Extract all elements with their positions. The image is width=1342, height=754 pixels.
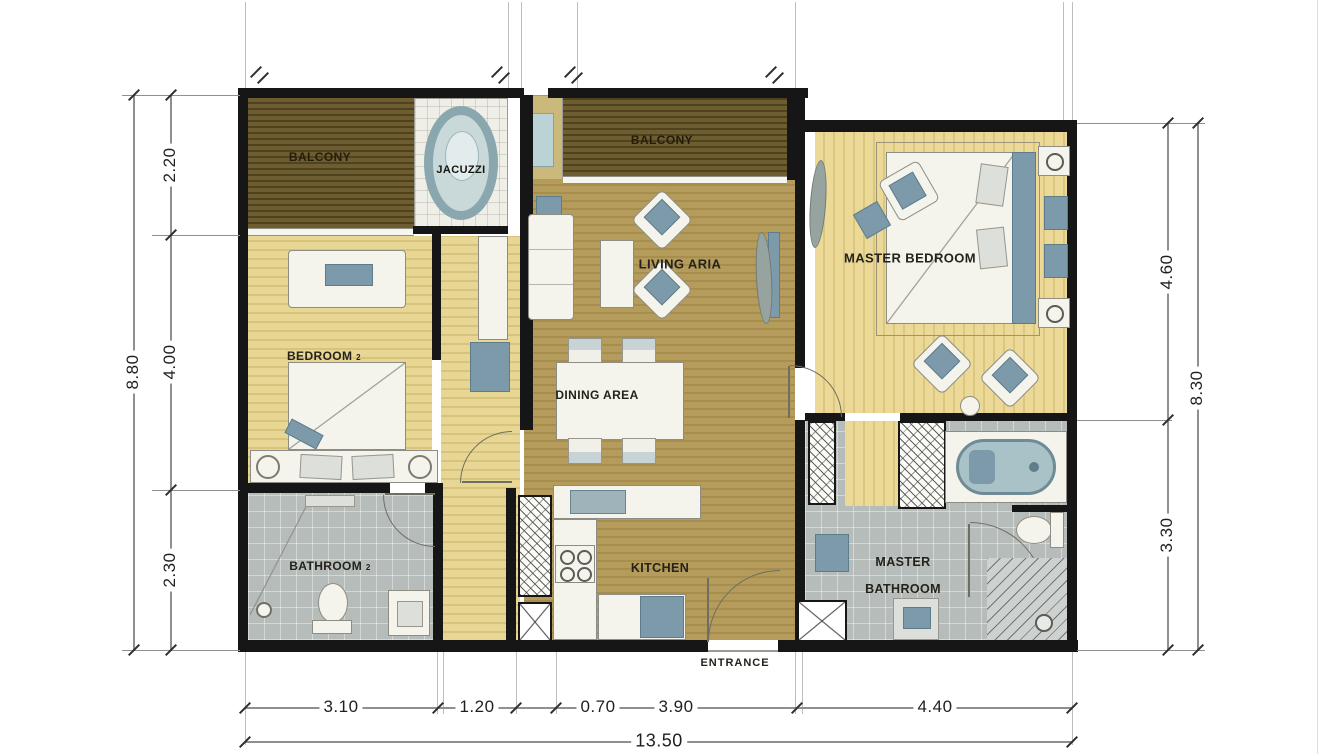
- sofa-icon: [528, 214, 574, 320]
- railing-tick: [564, 66, 576, 78]
- door-leaf: [788, 366, 790, 418]
- wall-cushion: [1044, 244, 1068, 278]
- pantry-icon: [518, 495, 552, 597]
- sink-icon: [570, 490, 626, 514]
- lamp-icon: [1046, 305, 1064, 323]
- wall: [795, 88, 805, 368]
- toilet-tank: [312, 620, 352, 634]
- room-label-bedroom2-text: BEDROOM: [287, 349, 352, 363]
- extension-line: [1072, 2, 1073, 120]
- dim-label-bottom-seg2: 0.70: [576, 697, 619, 717]
- side-table-icon: [960, 396, 980, 416]
- wall: [238, 640, 708, 652]
- basin-bowl: [397, 601, 423, 627]
- fridge-icon: [640, 596, 684, 638]
- wardrobe-icon: [470, 342, 510, 392]
- wall: [1012, 505, 1067, 512]
- chair-icon: [568, 438, 602, 464]
- dim-label-bottom-seg1: 1.20: [455, 697, 498, 717]
- room-label-master-bathroom-line1: MASTER: [875, 555, 930, 569]
- toilet-icon: [1016, 516, 1052, 544]
- armchair-cushion: [992, 357, 1029, 394]
- toilet-tank: [1050, 512, 1064, 548]
- shaft-x-icon: [797, 600, 847, 642]
- tub-headrest: [969, 450, 995, 484]
- dim-connector: [122, 95, 240, 96]
- extension-line: [795, 652, 796, 714]
- extension-line: [245, 652, 246, 745]
- wardrobe-icon: [808, 421, 836, 505]
- sliding-door-icon: [563, 176, 787, 184]
- bathtub-icon: [956, 439, 1056, 495]
- extension-line: [795, 2, 796, 88]
- washbasin-icon: [388, 590, 430, 636]
- dim-label-right-seg1: 3.30: [1157, 513, 1177, 556]
- pillow-icon: [351, 454, 394, 480]
- sliding-door-icon: [248, 228, 414, 236]
- railing-tick: [250, 66, 262, 78]
- drain-icon: [1035, 614, 1053, 632]
- tub-drain: [1029, 462, 1039, 472]
- railing-tick: [257, 72, 269, 84]
- floor-plan-canvas: BALCONY JACUZZI BALCONY LIVING ARIA MAST…: [0, 0, 1342, 754]
- extension-line: [437, 652, 438, 714]
- room-label-bedroom2: BEDROOM 2: [287, 349, 361, 363]
- railing-tick: [765, 66, 777, 78]
- shelf-icon: [305, 495, 355, 507]
- room-label-balcony-top: BALCONY: [631, 133, 693, 147]
- room-label-dining-area: DINING AREA: [555, 388, 638, 402]
- lamp-icon: [408, 455, 432, 479]
- room-label-bathroom2: BATHROOM 2: [289, 559, 371, 573]
- dim-label-left-seg0: 2.20: [160, 143, 180, 186]
- pillow-icon: [299, 454, 342, 480]
- wall: [238, 483, 390, 493]
- wall: [432, 228, 441, 360]
- extension-line: [245, 2, 246, 88]
- burner: [560, 550, 575, 565]
- wall: [900, 413, 1070, 421]
- door-leaf: [968, 524, 970, 597]
- extension-line: [802, 652, 803, 714]
- chair-icon: [622, 438, 656, 464]
- burner: [577, 567, 592, 582]
- wall: [413, 226, 508, 234]
- dim-label-left-seg2: 2.30: [160, 548, 180, 591]
- right-edge-line: [1317, 0, 1318, 754]
- coffee-table-icon: [600, 240, 634, 308]
- tv-icon: [325, 264, 373, 286]
- dim-label-bottom-seg4: 4.40: [913, 697, 956, 717]
- room-label-bathroom2-number: 2: [366, 563, 371, 572]
- dimension-line-right-segments: [1167, 123, 1169, 650]
- burner: [577, 550, 592, 565]
- chair-icon: [568, 338, 602, 364]
- chair-icon: [622, 338, 656, 364]
- room-label-balcony-left: BALCONY: [289, 150, 351, 164]
- extension-line: [521, 2, 522, 88]
- dim-label-right-overall: 8.30: [1187, 366, 1207, 409]
- basin-bowl: [903, 607, 931, 629]
- wardrobe-icon: [898, 421, 946, 509]
- stove-icon: [555, 545, 595, 583]
- shower-icon: [987, 558, 1067, 640]
- pillow-icon: [976, 227, 1008, 270]
- nightstand-icon: [1038, 146, 1070, 176]
- armchair-cushion: [924, 343, 961, 380]
- armchair-cushion: [889, 172, 927, 210]
- lamp-icon: [1046, 153, 1064, 171]
- room-label-master-bathroom-line2: BATHROOM: [865, 582, 941, 596]
- jacuzzi-tub-icon: [424, 106, 498, 220]
- dim-label-bottom-overall: 13.50: [631, 731, 687, 752]
- armchair-cushion: [644, 269, 681, 306]
- wall: [1067, 120, 1077, 652]
- room-label-bedroom2-number: 2: [356, 353, 361, 362]
- dim-label-left-overall: 8.80: [123, 350, 143, 393]
- wardrobe-icon: [478, 236, 508, 340]
- extension-line: [443, 652, 444, 714]
- washbasin-icon: [893, 598, 939, 640]
- wall-cushion: [1044, 196, 1068, 230]
- dim-connector: [152, 490, 240, 491]
- wall: [238, 88, 524, 98]
- dim-label-bottom-seg0: 3.10: [319, 697, 362, 717]
- room-label-bathroom2-text: BATHROOM: [289, 559, 362, 573]
- door-leaf: [707, 578, 709, 642]
- corridor-master-bathroom: [845, 421, 900, 506]
- extension-line: [1063, 2, 1064, 120]
- burner: [560, 567, 575, 582]
- bathtub-surround: [945, 431, 1067, 503]
- cabinet-icon: [815, 534, 849, 572]
- door-leaf: [385, 493, 435, 495]
- room-label-kitchen: KITCHEN: [631, 561, 689, 575]
- railing-tick: [772, 72, 784, 84]
- extension-line: [1072, 652, 1073, 745]
- dim-connector: [152, 235, 240, 236]
- dim-connector: [1077, 650, 1205, 651]
- dim-connector: [1077, 420, 1172, 421]
- drain-icon: [256, 602, 272, 618]
- wall: [238, 88, 248, 652]
- wall: [548, 88, 808, 98]
- dim-label-left-seg1: 4.00: [160, 340, 180, 383]
- shaft-x-icon: [518, 602, 552, 642]
- dim-label-right-seg0: 4.60: [1157, 250, 1177, 293]
- nightstand-icon: [1038, 298, 1070, 328]
- railing-tick: [491, 66, 503, 78]
- room-label-entrance: ENTRANCE: [700, 657, 769, 669]
- armchair-cushion: [644, 199, 681, 236]
- dim-label-bottom-seg3: 3.90: [654, 697, 697, 717]
- shower-curtain-icon: [250, 495, 312, 615]
- dim-connector: [122, 650, 240, 651]
- headboard-icon: [1012, 152, 1036, 324]
- toilet-icon: [318, 583, 348, 623]
- pillow-icon: [975, 163, 1008, 207]
- room-label-living-area: LIVING ARIA: [639, 257, 722, 272]
- room-label-jacuzzi: JACUZZI: [436, 164, 485, 176]
- room-label-master-bedroom: MASTER BEDROOM: [844, 251, 976, 266]
- wall: [805, 120, 1077, 132]
- lamp-icon: [256, 455, 280, 479]
- dim-connector: [1077, 123, 1205, 124]
- threshold: [708, 650, 778, 652]
